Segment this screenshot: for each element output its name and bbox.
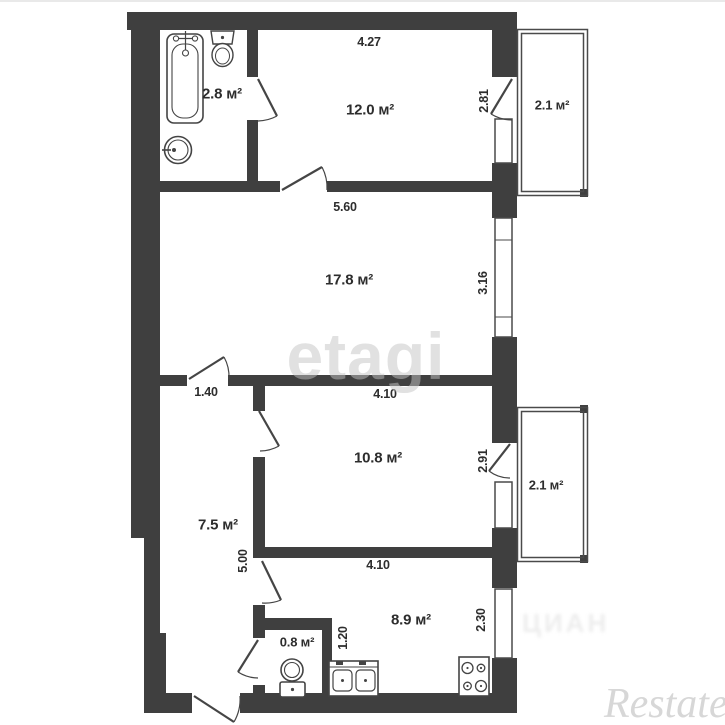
wall-left-upper <box>131 12 160 538</box>
area-label-balcony-bottom: 2.1 м² <box>529 478 563 493</box>
washbasin-icon <box>162 137 192 164</box>
wall-bathroom-bottom <box>160 181 280 192</box>
window-kitchen <box>495 589 512 658</box>
bathtub-icon <box>167 31 203 123</box>
watermark-faint: ЦИАН <box>522 608 609 639</box>
wall-left-recess <box>144 538 160 633</box>
wc-toilet-icon <box>280 659 305 697</box>
door-balcony-top <box>491 79 512 120</box>
dim-label-2-30: 2.30 <box>474 608 488 632</box>
dim-label-4-27: 4.27 <box>357 35 381 49</box>
window-living <box>495 218 512 337</box>
dim-label-5-60: 5.60 <box>333 200 357 214</box>
toilet-icon <box>211 31 234 67</box>
kitchen-sink-icon <box>329 661 378 696</box>
watermark-etagi: etagi <box>286 318 445 394</box>
dim-label-3-16: 3.16 <box>476 271 490 295</box>
wall-right-3 <box>492 337 517 443</box>
wall-right-5 <box>492 658 517 713</box>
dim-label-2-91: 2.91 <box>476 449 490 473</box>
window-room12 <box>495 119 512 163</box>
area-label-hallway: 7.5 м² <box>198 517 238 534</box>
wall-wc-top <box>253 618 332 630</box>
wall-bottom-left-corner <box>144 693 192 713</box>
doors <box>189 79 512 722</box>
wall-right-1 <box>492 12 517 77</box>
area-label-wc: 0.8 м² <box>280 635 314 650</box>
door-hallway-room10 <box>259 411 279 451</box>
dim-label-1-40: 1.40 <box>194 385 218 399</box>
dim-label-1-20: 1.20 <box>336 626 350 650</box>
door-living-hallway <box>189 357 229 379</box>
wall-bathroom-right-upper <box>247 30 258 77</box>
stove-icon <box>459 657 489 696</box>
wall-wc-left-lower <box>253 685 265 693</box>
wall-right-4 <box>492 528 517 588</box>
dim-label-4-10-b: 4.10 <box>366 558 390 572</box>
wall-kitchen-top <box>253 547 492 558</box>
wall-hall-room10-upper <box>253 385 265 411</box>
door-entrance <box>194 696 240 722</box>
wall-top <box>127 12 517 30</box>
door-room12-living <box>282 167 327 190</box>
dim-label-2-81: 2.81 <box>477 89 491 113</box>
wall-hall-room10-lower <box>253 457 265 547</box>
area-label-bathroom: 2.8 м² <box>202 86 242 103</box>
door-balcony-bottom <box>489 444 510 478</box>
balcony-top-inner-line <box>522 34 584 192</box>
wall-wc-left-upper <box>253 630 265 638</box>
door-bathroom <box>258 79 277 121</box>
wall-right-2 <box>492 163 517 218</box>
area-label-room12: 12.0 м² <box>346 102 394 119</box>
door-hallway-kitchen <box>262 561 281 603</box>
area-label-kitchen: 8.9 м² <box>391 612 431 629</box>
dim-label-5-00: 5.00 <box>236 549 250 573</box>
balcony-top-outline <box>518 30 588 196</box>
wall-living-bottom-left <box>160 375 187 386</box>
floor-plan-image: 2.8 м² 12.0 м² 2.1 м² 17.8 м² 10.8 м² 2.… <box>0 0 725 725</box>
area-label-room10: 10.8 м² <box>354 450 402 467</box>
door-wc <box>238 640 258 678</box>
window-room10 <box>495 482 512 528</box>
wall-bathroom-right-lower <box>247 120 258 192</box>
wall-room12-bottom <box>327 181 492 192</box>
watermark-restate: Restate <box>604 680 725 725</box>
wall-left-lower <box>144 633 166 693</box>
area-label-balcony-top: 2.1 м² <box>535 98 569 113</box>
area-label-living: 17.8 м² <box>325 272 373 289</box>
